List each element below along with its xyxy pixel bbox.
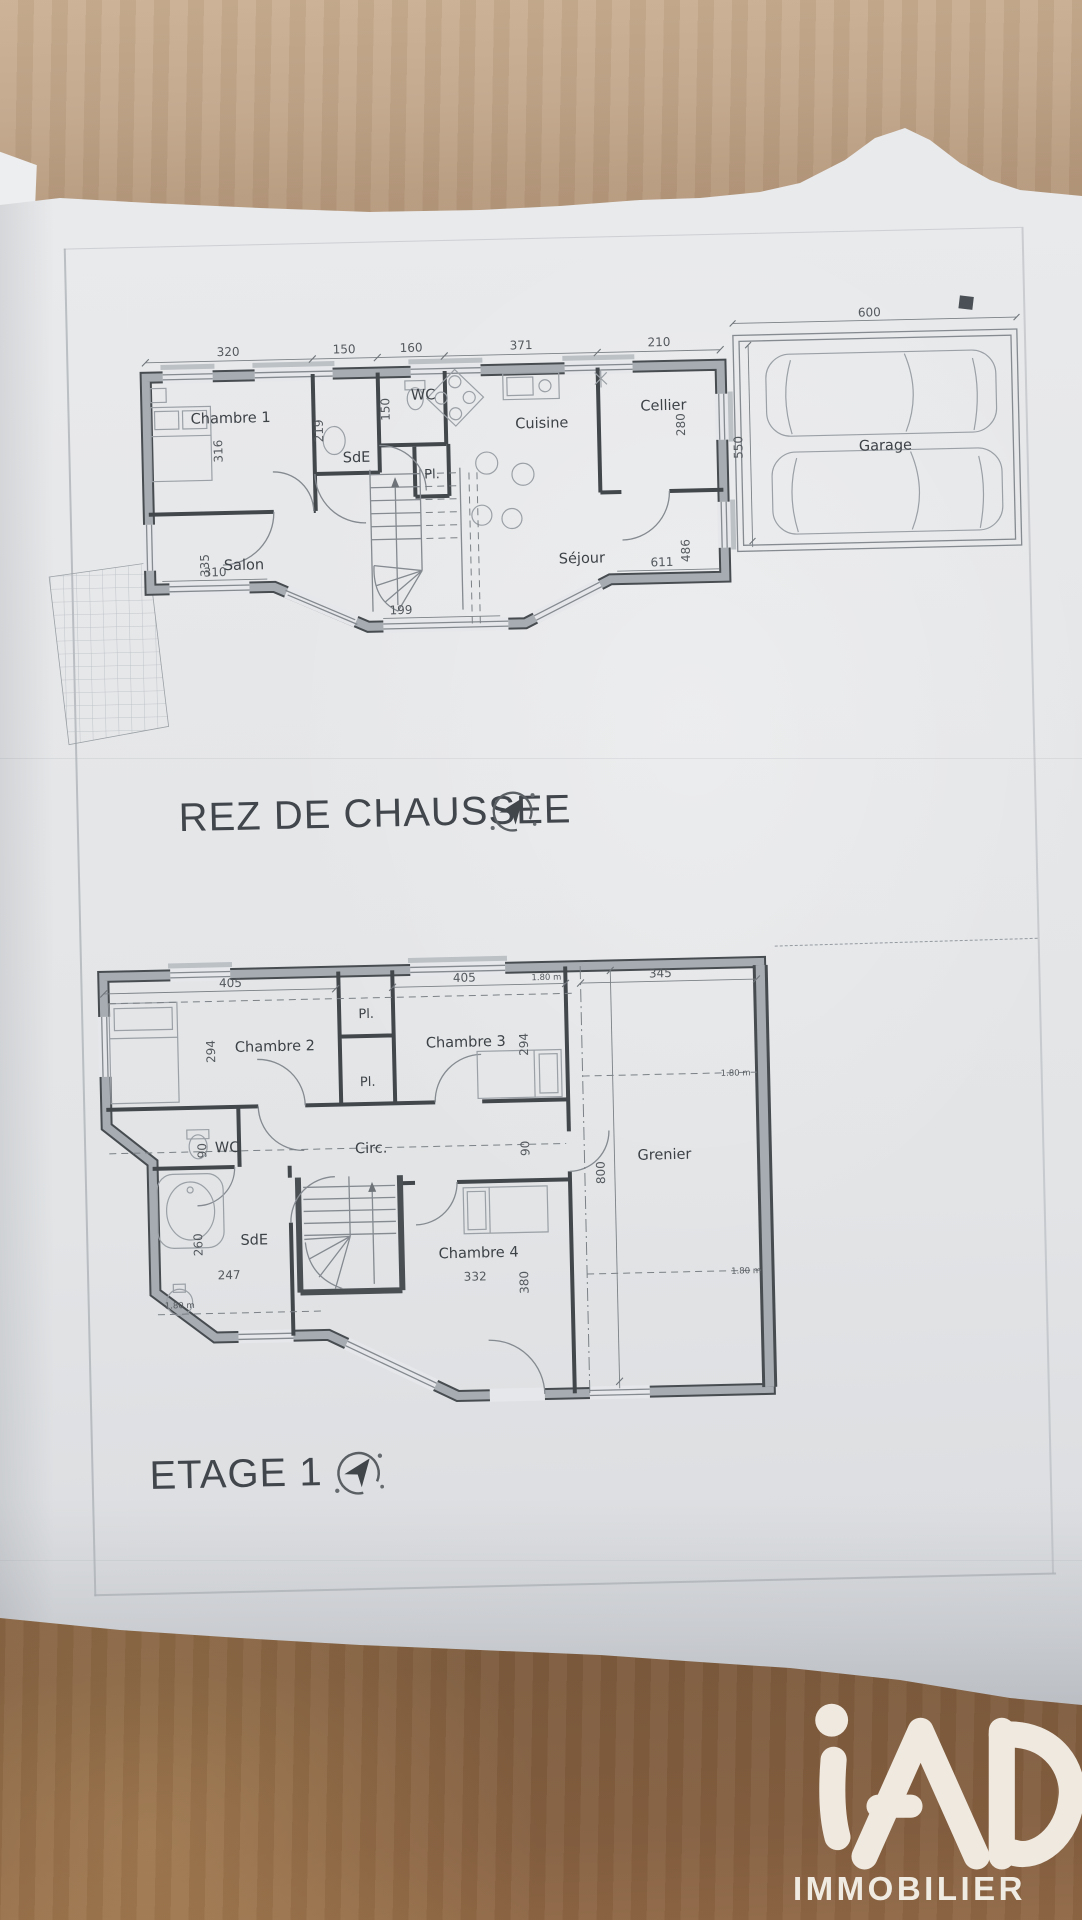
dim-cellier-w: 210: [647, 335, 670, 350]
north-compass-icon: [483, 782, 542, 841]
dim-sde-w: 247: [217, 1268, 240, 1283]
dim-wc-h: 90: [195, 1143, 209, 1159]
dim-garage-h: 550: [731, 436, 746, 459]
dim-chambre2-w: 405: [219, 976, 242, 991]
room-label-cellier: Cellier: [640, 398, 686, 415]
dim-sejour-w: 611: [650, 555, 673, 570]
bed-chambre2: [109, 1002, 179, 1104]
garage-outline: [729, 294, 1025, 551]
height-marker-3: 1.80 m: [731, 1266, 761, 1277]
room-label-sejour: Séjour: [559, 550, 606, 567]
dim-chambre3-w: 405: [453, 970, 476, 985]
dim-sde-h: 260: [191, 1233, 206, 1256]
exterior-walls: [103, 962, 770, 1404]
iad-immobilier-watermark: IMMOBILIER: [793, 1694, 1082, 1920]
room-label-pl-top: Pl.: [358, 1007, 374, 1022]
dim-garage-w: 600: [858, 305, 881, 320]
stairs: [298, 1175, 403, 1292]
exterior-walls-fill: [103, 962, 770, 1404]
room-label-chambre2: Chambre 2: [235, 1038, 315, 1056]
dim-sde-w: 150: [332, 342, 355, 357]
ground-floor-plan: 320 150 160 371 210 600 550 316 219 150 …: [30, 254, 1051, 777]
dim-grenier-h: 800: [594, 1161, 609, 1184]
height-marker-4: 1.80 m: [165, 1301, 195, 1312]
room-label-pl: Pl.: [424, 467, 440, 482]
bed-chambre4: [463, 1186, 548, 1234]
dim-cuisine-w: 371: [509, 338, 532, 353]
dim-chambre1-h: 316: [211, 440, 226, 463]
dim-cellier-h: 280: [674, 413, 689, 436]
dim-sde-h: 219: [312, 419, 327, 442]
room-label-wc: WC: [215, 1140, 240, 1157]
dim-circ-h: 90: [518, 1141, 532, 1157]
car-top: [765, 350, 997, 437]
car-bottom: [772, 447, 1004, 534]
door-arcs: [220, 439, 671, 565]
room-label-chambre3: Chambre 3: [426, 1034, 506, 1052]
dimension-lines: [100, 964, 769, 1400]
section-line: [469, 472, 481, 627]
bathroom-fixtures: [156, 1129, 226, 1315]
dim-chambre4-w: 332: [464, 1269, 487, 1284]
stairs: [370, 467, 481, 629]
room-label-sde: SdE: [240, 1232, 268, 1249]
dim-grenier-w: 345: [649, 966, 672, 981]
dashed-reference-line: [775, 938, 1038, 947]
dim-chambre4-h: 380: [517, 1271, 532, 1294]
iad-logo-subtitle: IMMOBILIER: [793, 1870, 1082, 1908]
kitchen-fixtures: [426, 366, 610, 530]
height-marker-1: 1.80 m: [531, 973, 561, 984]
dim-wc-h: 150: [378, 398, 393, 421]
iad-logo-icon: [793, 1694, 1082, 1870]
printed-sheet-content: 320 150 160 371 210 600 550 316 219 150 …: [0, 0, 1082, 1920]
room-label-chambre1: Chambre 1: [191, 410, 271, 428]
bed: [150, 387, 212, 481]
room-label-chambre4: Chambre 4: [439, 1245, 519, 1263]
first-floor-plan: 405 405 345 1.80 m 294 294 800 90 90 260…: [79, 927, 792, 1503]
plan-border-top: [64, 227, 1022, 250]
first-floor-title: ETAGE 1: [149, 1450, 323, 1499]
room-label-cuisine: Cuisine: [515, 415, 568, 432]
room-label-pl-mid: Pl.: [360, 1075, 376, 1090]
dim-wc-w: 160: [399, 341, 422, 356]
room-label-wc: WC: [411, 387, 436, 404]
dim-chambre2-h: 294: [204, 1040, 219, 1063]
attic-height-lines: [105, 962, 764, 1404]
height-marker-2: 1.80 m: [721, 1068, 751, 1079]
post-marker: [958, 295, 973, 310]
room-label-salon: Salon: [224, 557, 265, 574]
room-label-sde: SdE: [343, 450, 371, 467]
dim-chambre3-h: 294: [517, 1033, 532, 1056]
dim-chambre1-w: 320: [217, 345, 240, 360]
photo-of-floorplan: 320 150 160 371 210 600 550 316 219 150 …: [0, 0, 1082, 1920]
room-label-circ: Circ.: [355, 1141, 388, 1158]
plan-border-bottom: [94, 1572, 1056, 1595]
room-label-grenier: Grenier: [637, 1147, 691, 1164]
room-label-garage: Garage: [859, 437, 913, 454]
north-compass-icon: [327, 1442, 390, 1505]
dim-sejour-h: 486: [678, 539, 693, 562]
floorplan-paper-sheet: 320 150 160 371 210 600 550 316 219 150 …: [0, 0, 1082, 1920]
dim-stairs-w: 199: [389, 603, 412, 618]
